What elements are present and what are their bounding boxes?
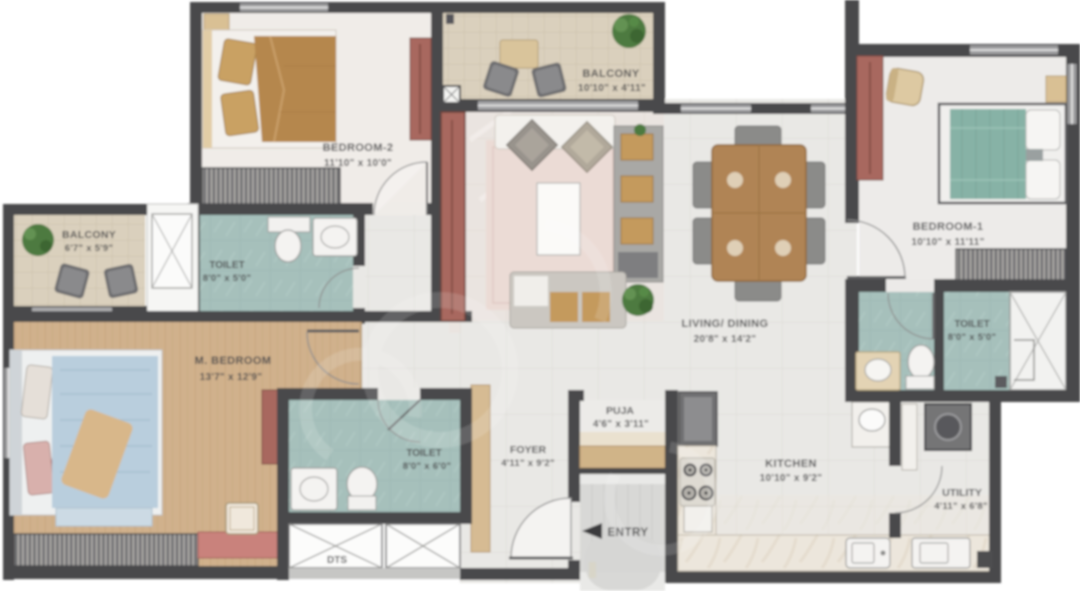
svg-text:PUJA: PUJA — [606, 405, 634, 417]
svg-text:BALCONY: BALCONY — [62, 229, 116, 241]
svg-text:DTS: DTS — [327, 555, 347, 566]
svg-text:8'0" x 5'0": 8'0" x 5'0" — [948, 332, 997, 343]
svg-text:TOILET: TOILET — [406, 448, 441, 459]
svg-text:FOYER: FOYER — [510, 444, 547, 456]
svg-text:20'8" x 14'2": 20'8" x 14'2" — [694, 334, 757, 345]
svg-text:10'10" x 4'11": 10'10" x 4'11" — [578, 83, 646, 94]
svg-text:13'7" x 12'9": 13'7" x 12'9" — [200, 372, 263, 383]
svg-text:BEDROOM-2: BEDROOM-2 — [323, 142, 394, 154]
svg-text:10'10" x 11'11": 10'10" x 11'11" — [911, 237, 984, 248]
svg-text:4'11" x 6'8": 4'11" x 6'8" — [934, 501, 988, 512]
svg-text:8'0" x 6'0": 8'0" x 6'0" — [403, 461, 452, 472]
svg-text:8'0" x 5'0": 8'0" x 5'0" — [203, 273, 252, 284]
svg-text:M. BEDROOM: M. BEDROOM — [195, 355, 272, 367]
svg-text:BALCONY: BALCONY — [582, 68, 639, 80]
svg-text:TOILET: TOILET — [954, 319, 989, 330]
svg-text:10'10" x 9'2": 10'10" x 9'2" — [760, 473, 823, 484]
svg-text:UTILITY: UTILITY — [942, 487, 982, 499]
svg-text:11'10" x 10'0": 11'10" x 10'0" — [324, 158, 392, 169]
svg-text:BEDROOM-1: BEDROOM-1 — [913, 221, 984, 233]
svg-text:4'11" x 9'2": 4'11" x 9'2" — [501, 458, 555, 469]
svg-text:TOILET: TOILET — [209, 260, 244, 271]
svg-text:6'7" x 5'9": 6'7" x 5'9" — [65, 243, 114, 254]
svg-text:4'6" x 3'11": 4'6" x 3'11" — [593, 419, 649, 430]
svg-text:KITCHEN: KITCHEN — [765, 458, 817, 470]
svg-text:LIVING/ DINING: LIVING/ DINING — [682, 318, 769, 330]
